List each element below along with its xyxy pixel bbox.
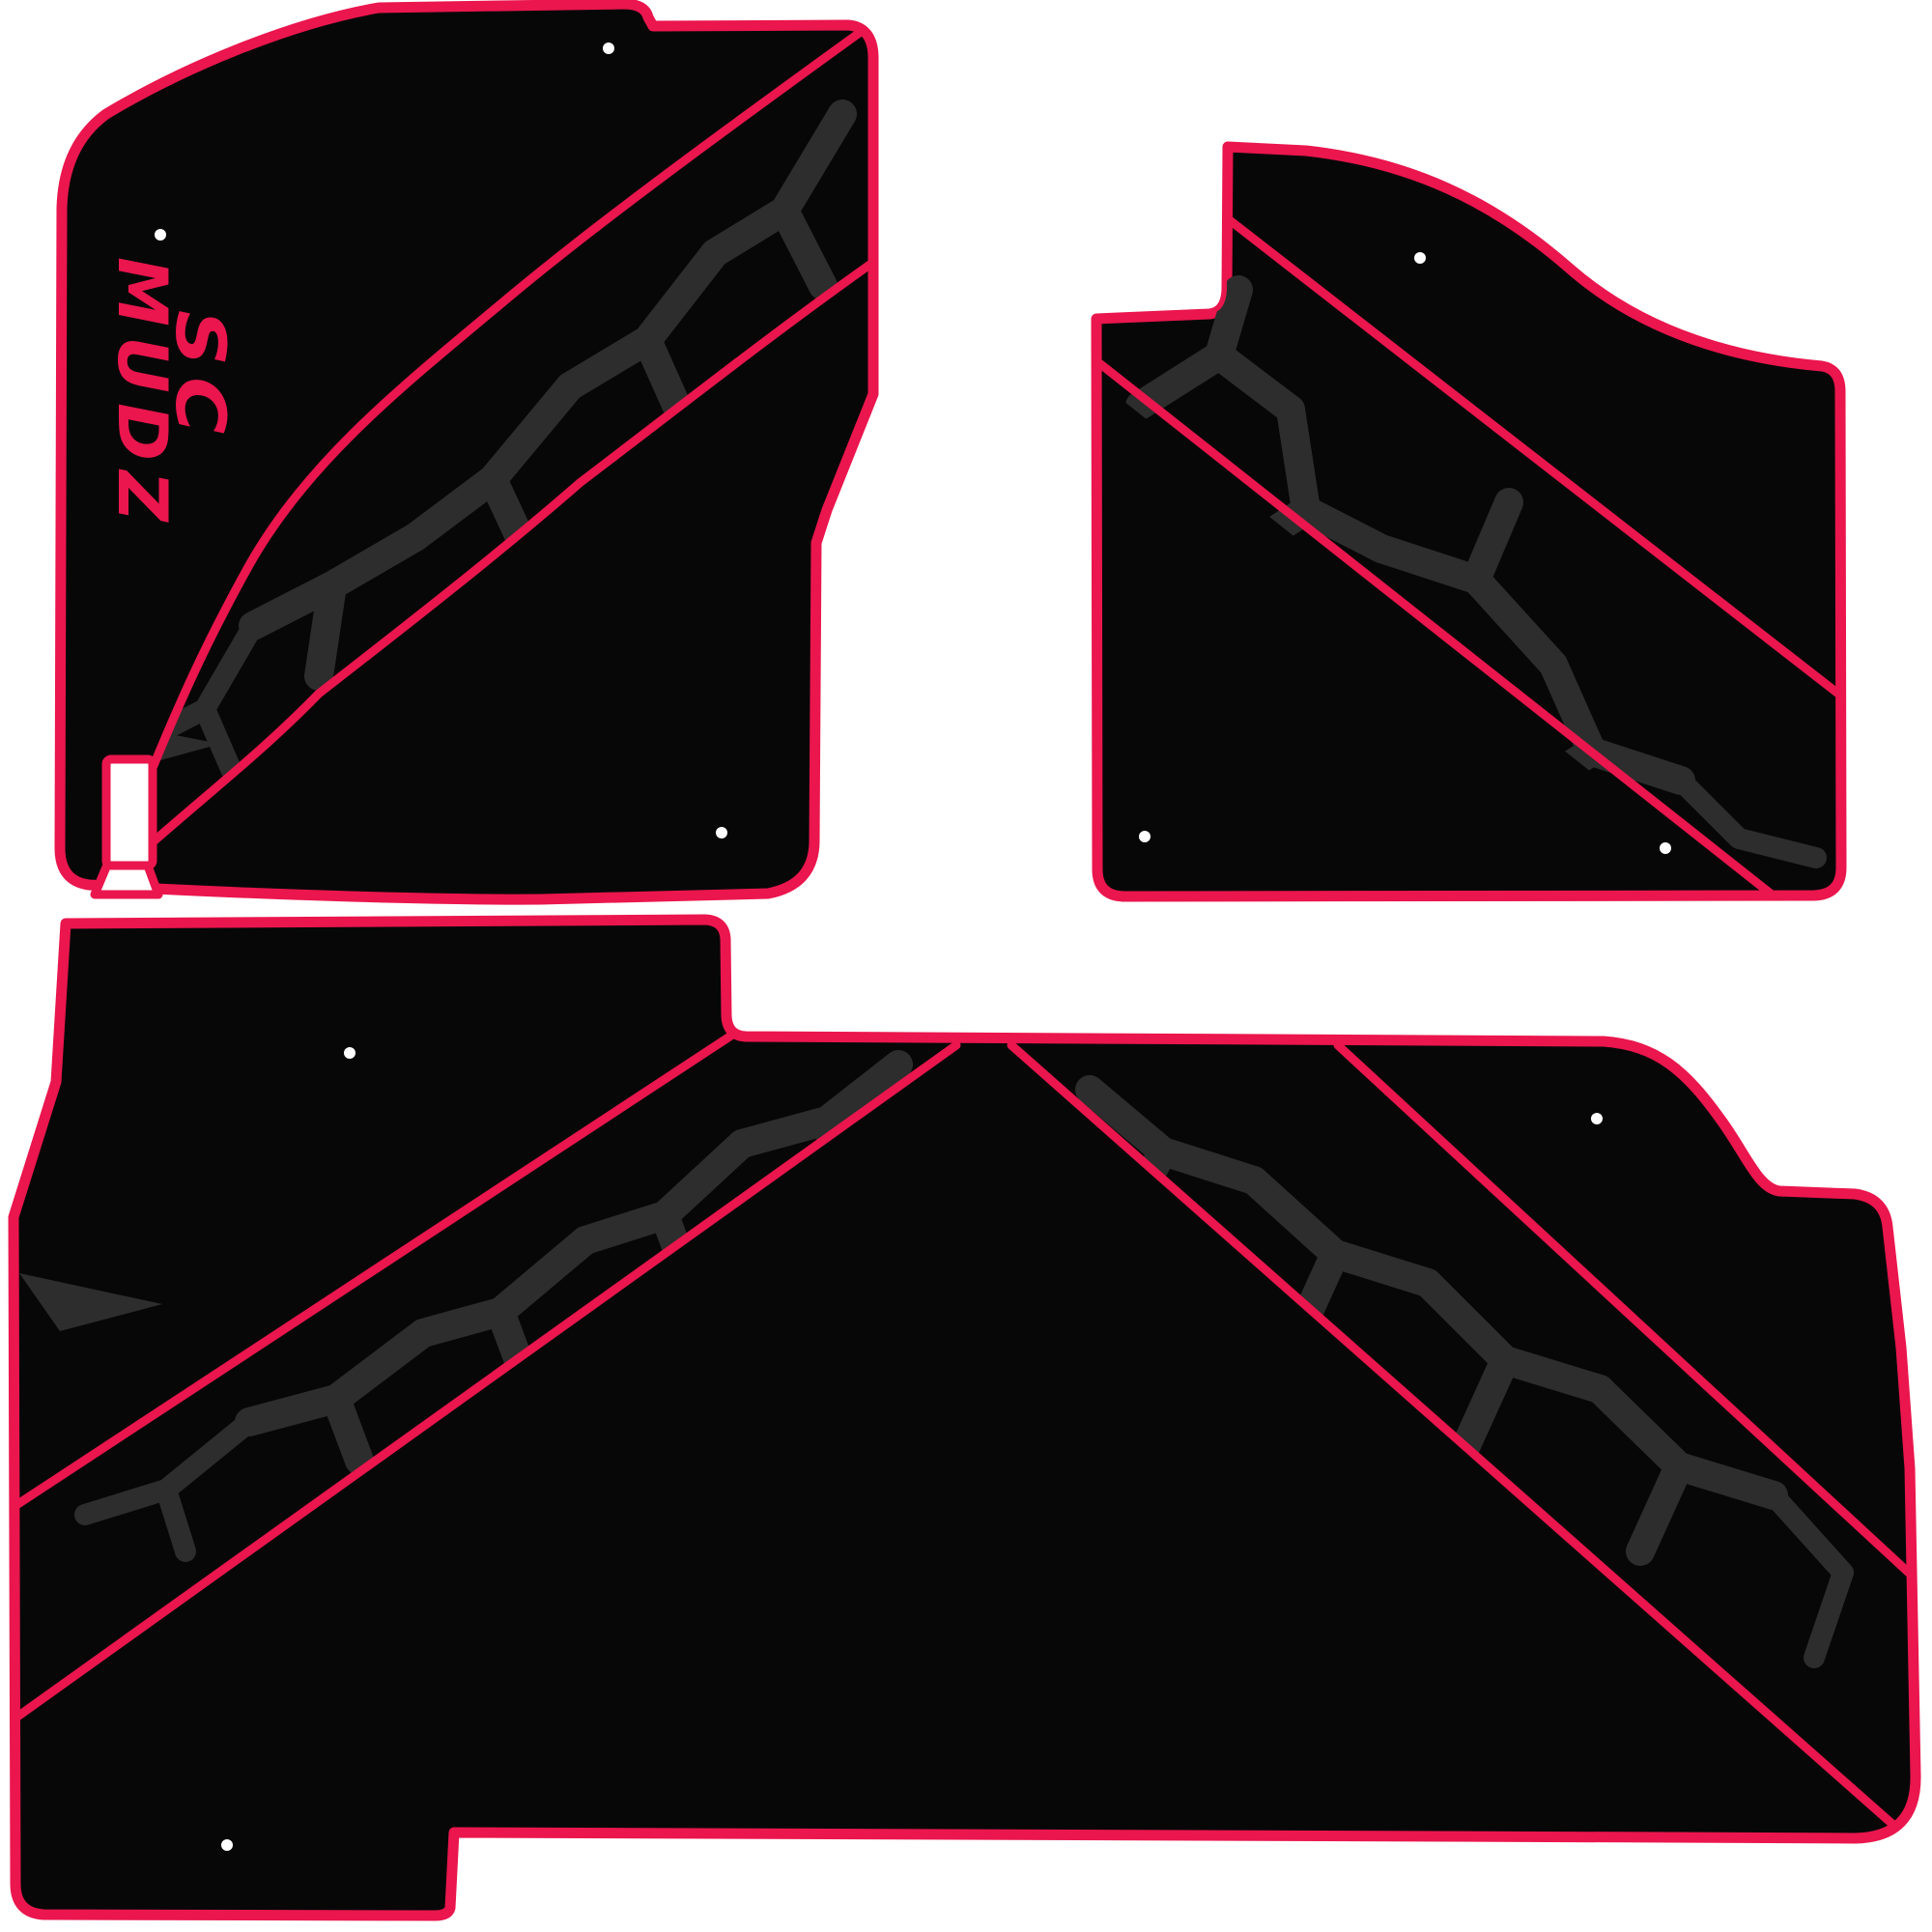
floor-mat-product-graphic: SC MUDZ (0, 0, 1932, 1932)
fixing-hole (603, 43, 614, 54)
mat-front-driver: SC MUDZ (60, 4, 875, 899)
fixing-hole (155, 229, 166, 241)
fixing-hole (344, 1047, 355, 1059)
floor-mats-svg: SC MUDZ (0, 0, 1932, 1932)
fixing-hole (1660, 842, 1671, 854)
brand-logo-line2: MUDZ (102, 257, 182, 531)
fixing-hole (1139, 831, 1151, 842)
mat-front-passenger (1094, 147, 1843, 916)
mat-rear-bench (14, 920, 1916, 1916)
mat-front-passenger-outline (1096, 147, 1841, 896)
heel-cutout-window (106, 759, 153, 866)
fixing-hole (1591, 1113, 1603, 1124)
fixing-hole (221, 1839, 233, 1851)
fixing-hole (716, 827, 727, 838)
heel-cutout (95, 759, 158, 895)
fixing-hole (1414, 252, 1426, 264)
